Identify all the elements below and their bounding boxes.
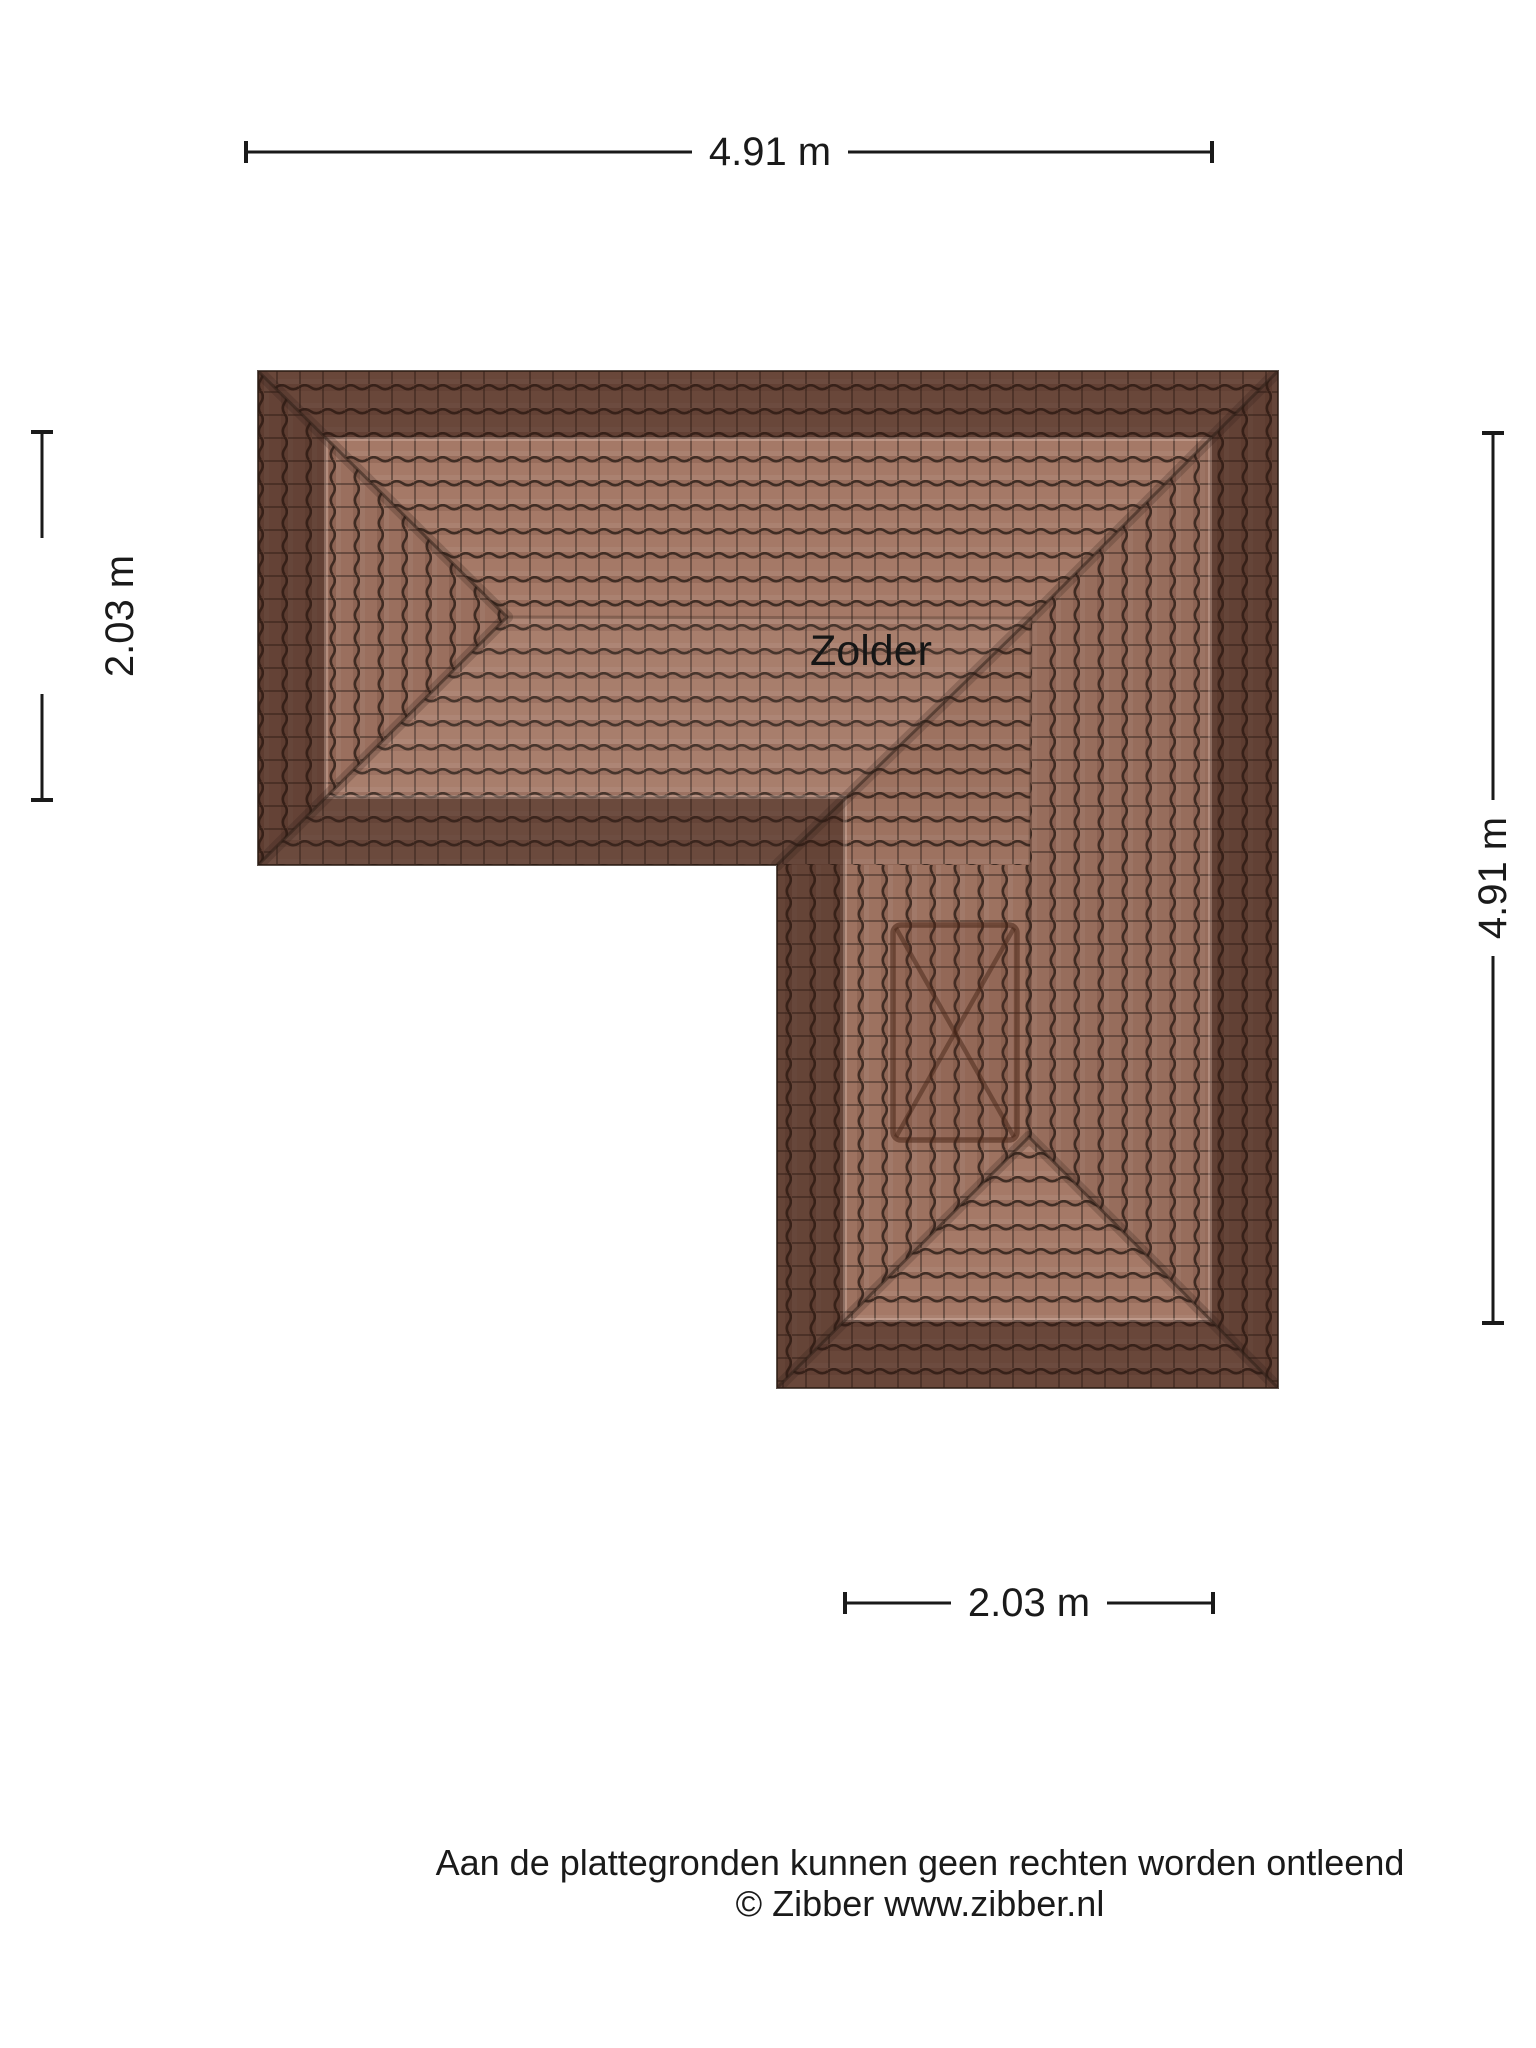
dimension-top-label: 4.91 m <box>709 130 831 174</box>
dimension-right-label: 4.91 m <box>1471 817 1515 939</box>
footer-copyright: © Zibber www.zibber.nl <box>736 1883 1105 1924</box>
room-label: Zolder <box>810 627 932 675</box>
floorplan-page: Zolder <box>0 0 1536 2048</box>
dimension-left <box>31 432 53 800</box>
floorplan-canvas: Zolder <box>0 0 1536 2048</box>
dimension-lines <box>31 141 1504 1614</box>
ridge-vertical <box>1029 618 1031 1137</box>
ridge-horizontal <box>507 617 1031 618</box>
roof-window <box>893 925 1017 1140</box>
dimension-bottom-label: 2.03 m <box>968 1581 1090 1625</box>
footer: Aan de plattegronden kunnen geen rechten… <box>436 1842 1405 1924</box>
footer-disclaimer: Aan de plattegronden kunnen geen rechten… <box>436 1842 1405 1883</box>
roof: Zolder <box>258 371 1278 1388</box>
dimension-left-label: 2.03 m <box>98 555 142 677</box>
